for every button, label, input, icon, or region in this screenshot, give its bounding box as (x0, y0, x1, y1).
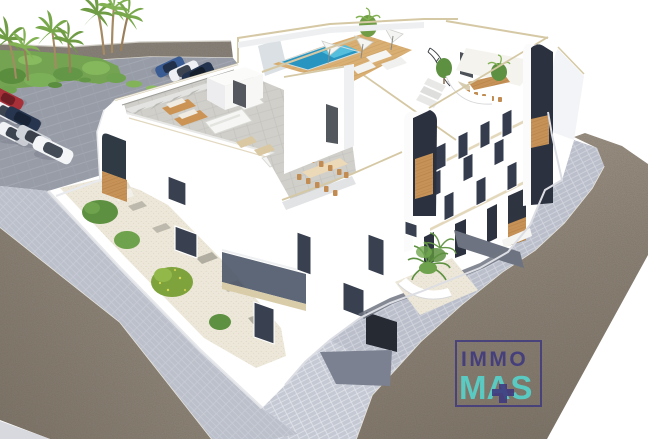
svg-text:MAS: MAS (459, 369, 532, 406)
svg-text:IMMO: IMMO (461, 348, 528, 371)
